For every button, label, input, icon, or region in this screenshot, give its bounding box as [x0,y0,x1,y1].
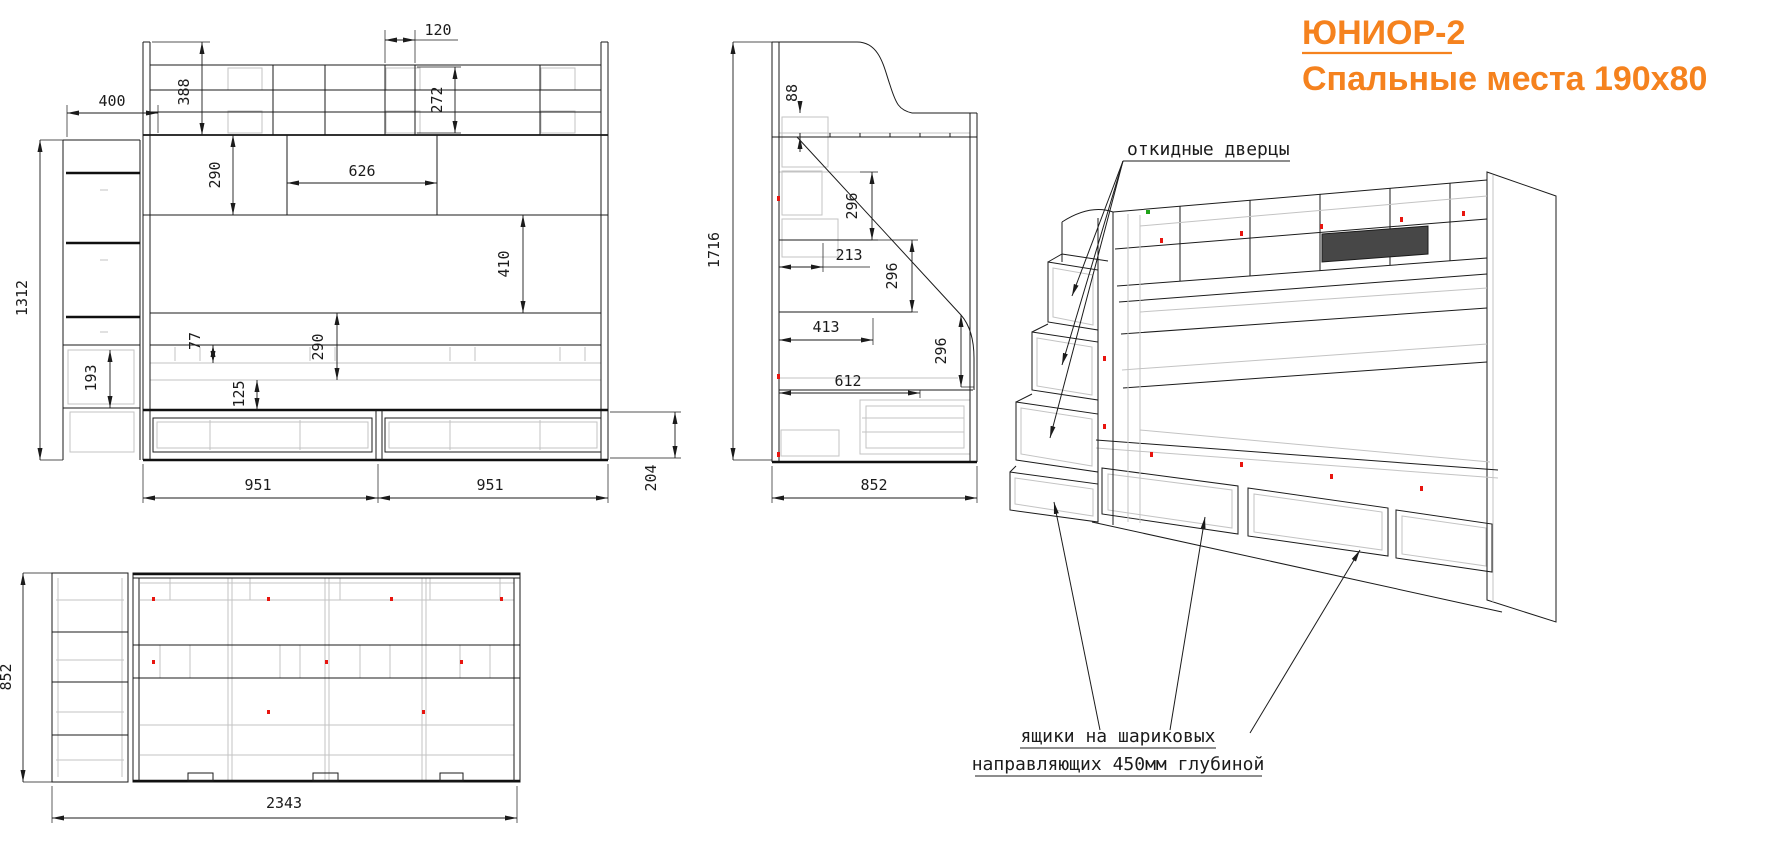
title-block: ЮНИОР-2 Спальные места 190x80 [1302,14,1707,98]
dim-side-296-mid: 296 [883,262,901,289]
dim-front-120: 120 [424,21,451,39]
iso-stair-drawer [1010,466,1098,522]
top-view: 852 2343 [0,573,520,823]
iso-top-shelf-band [1113,180,1487,302]
drawing-sheet: 120 388 272 400 626 290 410 1312 193 77 [0,0,1771,856]
side-view-dimensions: 1716 88 296 213 296 413 296 612 [705,42,977,503]
iso-drawer-left [1102,468,1238,534]
dim-front-204: 204 [642,464,660,491]
page-title: ЮНИОР-2 [1302,14,1465,52]
front-view-body [143,42,608,460]
dim-front-388: 388 [175,78,193,105]
drawers-annotation: ящики на шариковых направляющих 450мм гл… [972,502,1360,776]
iso-middle-rails [1121,288,1487,388]
dim-side-612: 612 [834,372,861,390]
side-view-gray-details [779,117,970,456]
top-view-dimensions: 852 2343 [0,573,517,823]
iso-drawer-middle [1248,488,1388,556]
drawers-label-line1: ящики на шариковых [1020,726,1215,747]
front-view-dimensions: 120 388 272 400 626 290 410 1312 193 77 [13,21,681,503]
dim-side-213: 213 [835,246,862,264]
dim-side-296-top: 296 [843,192,861,219]
flip-doors-annotation: откидные дверцы [1050,139,1290,438]
dim-front-272: 272 [428,86,446,113]
dim-front-193: 193 [82,364,100,391]
side-view-body [772,42,977,462]
page-subtitle: Спальные места 190x80 [1302,60,1707,98]
iso-drawer-right [1396,510,1492,572]
iso-right-panel [1487,172,1556,622]
dim-top-852: 852 [0,663,15,690]
dim-side-88: 88 [783,84,801,102]
dim-front-290-rail: 290 [309,333,327,360]
assembly-mark-green [1146,210,1150,214]
side-view: 1716 88 296 213 296 413 296 612 [705,42,977,503]
assembly-marks-red [152,597,503,714]
dim-front-77: 77 [186,332,204,350]
drawers-label-line2: направляющих 450мм глубиной [972,754,1265,775]
iso-staircase [1010,210,1140,525]
dim-front-951-right: 951 [476,476,503,494]
bunk-bed-drawing: 120 388 272 400 626 290 410 1312 193 77 [0,0,1771,856]
dim-front-410: 410 [495,250,513,277]
dim-side-296-bot: 296 [932,337,950,364]
dim-front-951-left: 951 [244,476,271,494]
isometric-view: откидные дверцы ящики на шариковых напра… [972,139,1556,776]
dim-front-1312: 1312 [13,280,31,316]
dim-front-400: 400 [98,92,125,110]
front-view: 120 388 272 400 626 290 410 1312 193 77 [13,21,681,503]
iso-drawer-unit [1092,430,1502,612]
dim-top-2343: 2343 [266,794,302,812]
dim-front-626: 626 [348,162,375,180]
front-view-gray-details [68,68,601,452]
dim-side-852: 852 [860,476,887,494]
top-view-gray-details [56,578,514,781]
dim-front-125: 125 [230,380,248,407]
dim-side-413: 413 [812,318,839,336]
dim-side-1716: 1716 [705,232,723,268]
flip-doors-label: откидные дверцы [1127,139,1290,160]
dim-front-290-shelf: 290 [206,161,224,188]
